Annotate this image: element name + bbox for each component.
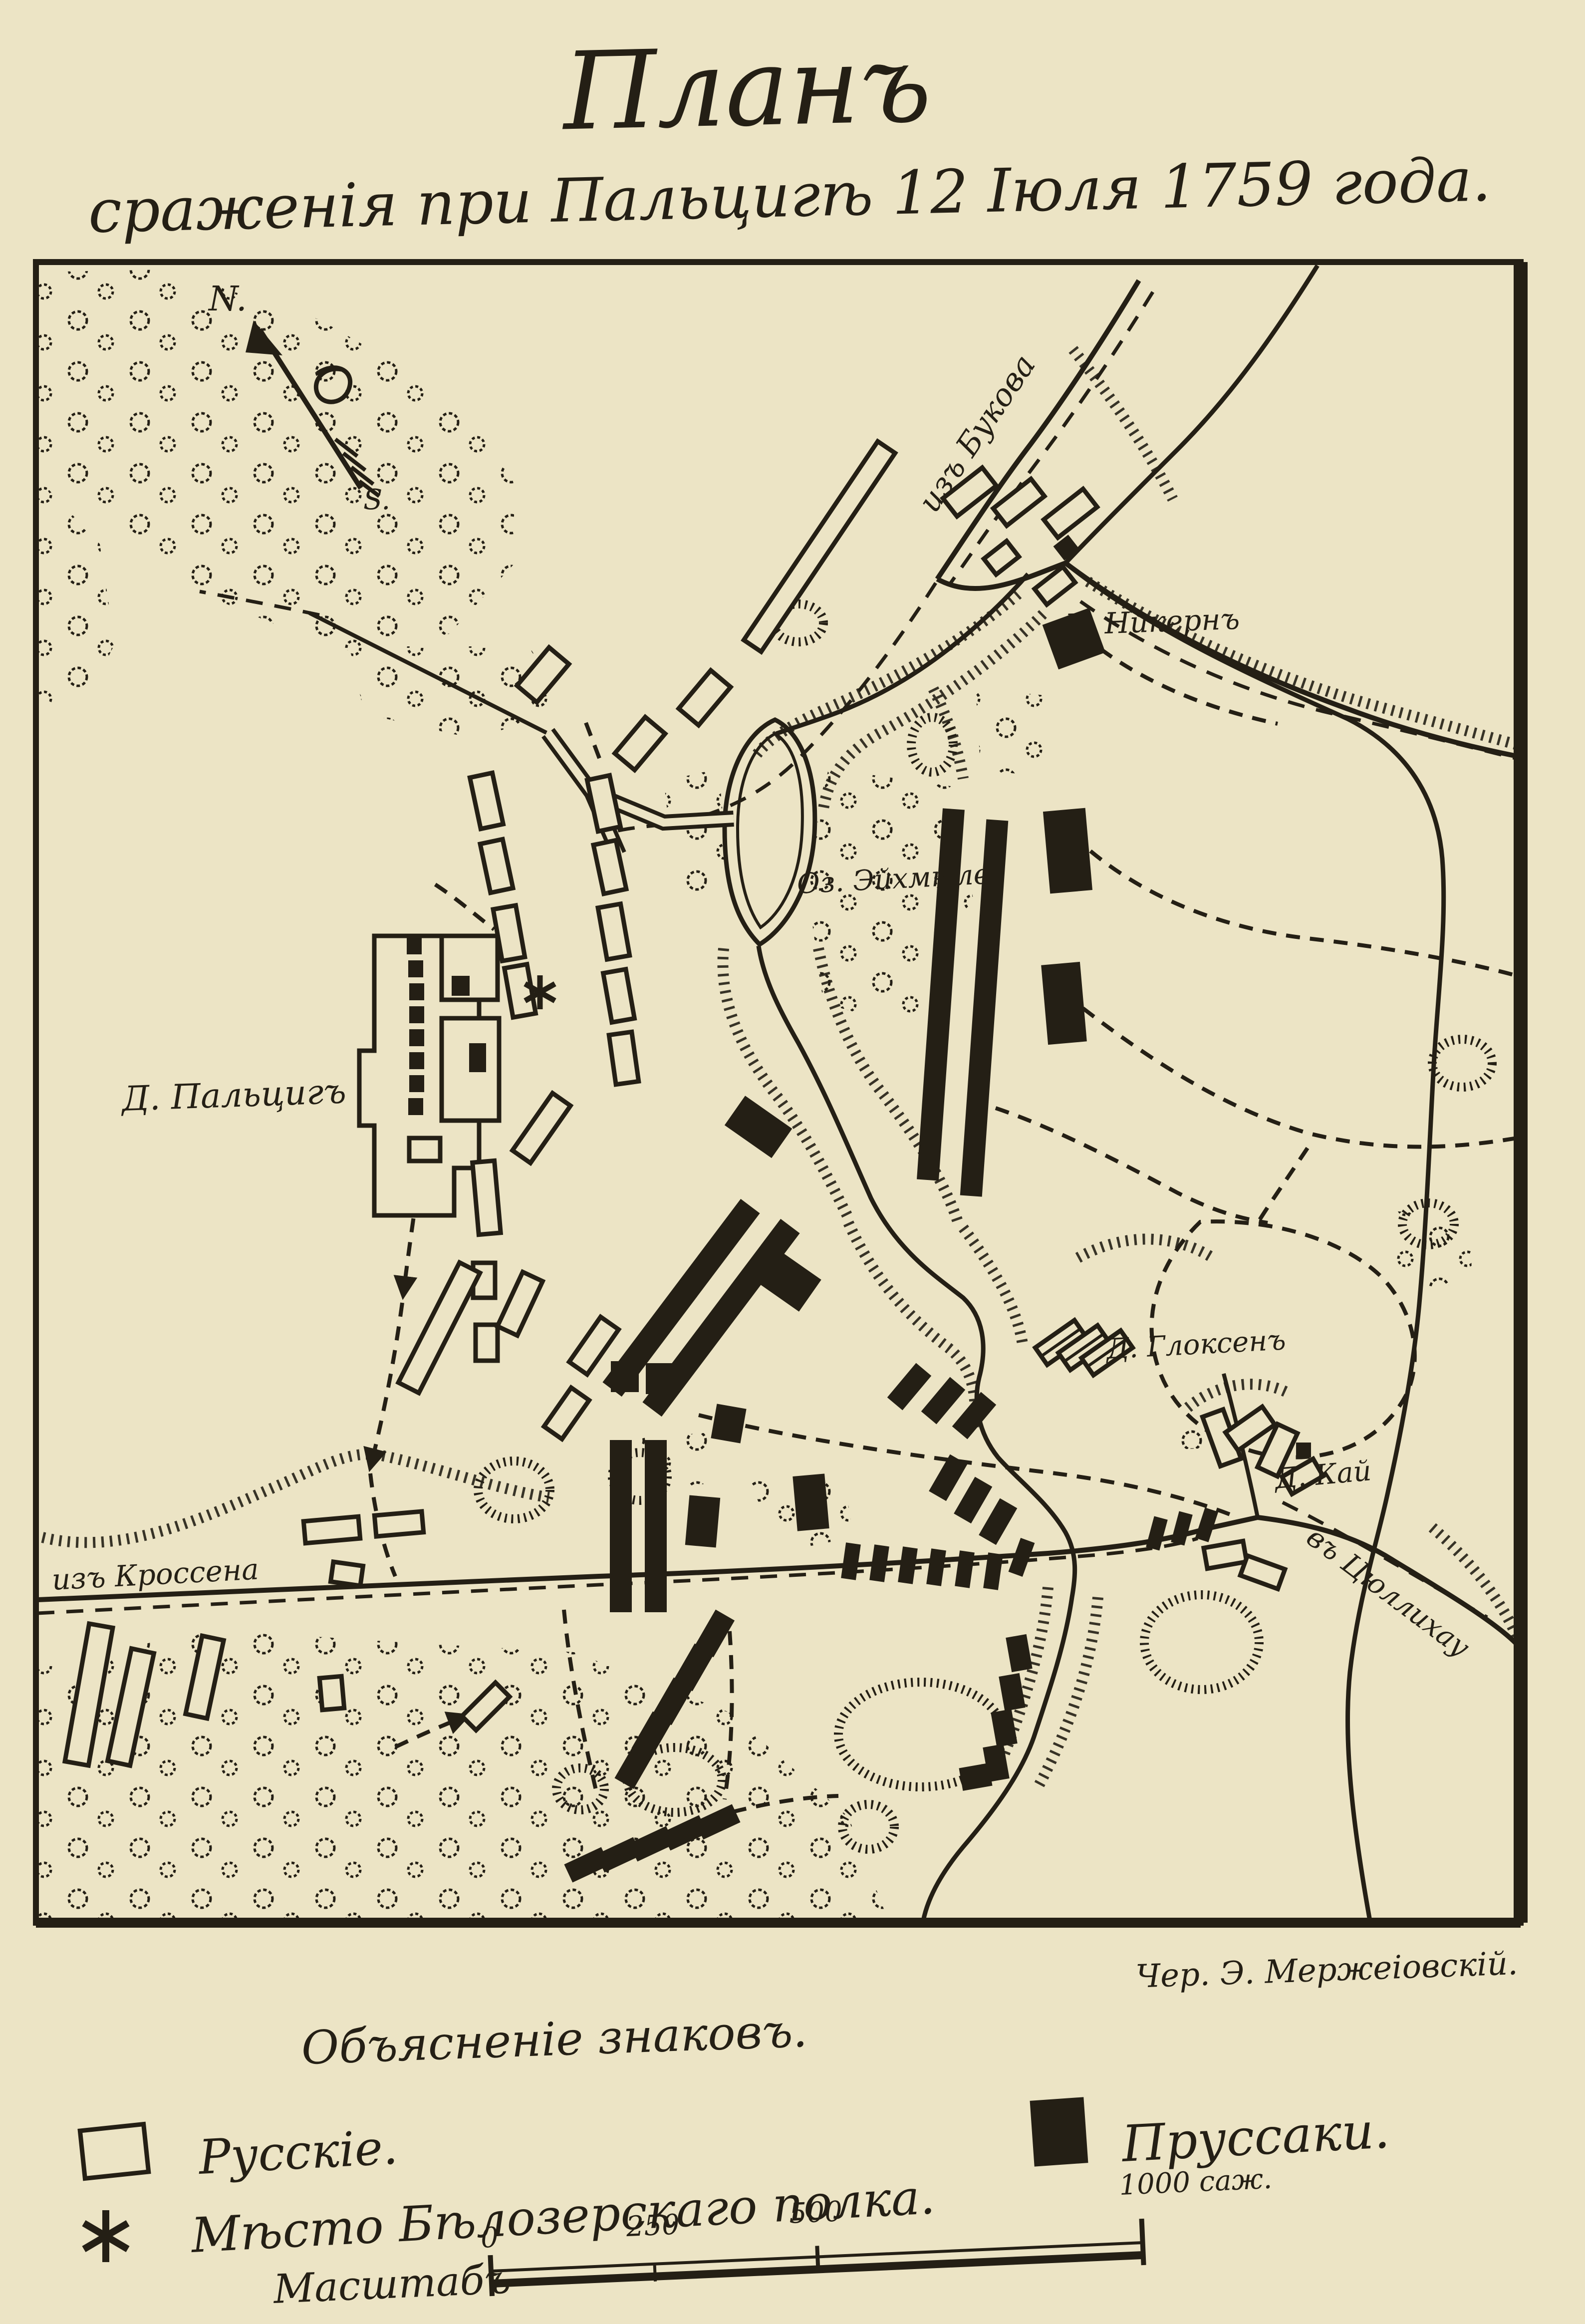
prussian-unit-long	[645, 1440, 667, 1612]
russian-unit	[609, 1032, 638, 1084]
scale-tick-0: 0	[480, 2221, 499, 2254]
legend-russian-label: Русскіе.	[196, 2120, 399, 2185]
label-palzig: Д. Пальцигъ	[120, 1072, 347, 1119]
stream-main-lower	[759, 946, 1075, 1921]
prussian-unit	[646, 1363, 674, 1394]
forest-nickern-south	[976, 689, 1058, 776]
prussian-unit	[991, 1709, 1018, 1747]
russian-unit	[513, 1093, 570, 1163]
scale-tick-500: 500	[789, 2195, 843, 2230]
label-gloksen: Д. Глоксенъ	[1104, 1324, 1287, 1366]
prussian-unit	[711, 1404, 746, 1443]
title-line2: сраженія при Пальцигѣ 12 Іюля 1759 года.	[87, 145, 1492, 247]
russian-unit	[331, 1562, 363, 1586]
prussian-unit	[1171, 1511, 1193, 1545]
russian-unit-long	[398, 1262, 480, 1393]
prussian-unit	[954, 1477, 992, 1524]
russian-unit	[544, 1388, 589, 1439]
prussian-unit	[869, 1544, 889, 1582]
russian-unit	[679, 670, 731, 725]
forest-east-grove	[1387, 1210, 1472, 1290]
prussian-unit	[1043, 808, 1092, 894]
map-title: Планъ сраженія при Пальцигѣ 12 Іюля 1759…	[84, 8, 1492, 247]
prussian-unit	[959, 1763, 992, 1791]
russian-unit	[587, 775, 620, 831]
russian-unit	[303, 1516, 360, 1543]
russian-unit	[374, 1511, 423, 1536]
legend-prussian-symbol	[1030, 2097, 1088, 2166]
map-sheet: Планъ сраженія при Пальцигѣ 12 Іюля 1759…	[0, 0, 1585, 2324]
russian-unit	[603, 969, 635, 1022]
russian-unit	[473, 1161, 501, 1234]
forest-west-of-lake	[664, 769, 729, 908]
battle-map-svg: Планъ сраженія при Пальцигѣ 12 Іюля 1759…	[0, 0, 1585, 2324]
prussian-unit	[1006, 1634, 1033, 1672]
prussian-unit	[926, 1548, 946, 1586]
prussian-unit	[792, 1473, 829, 1531]
legend: Объясненіе знаковъ. Русскіе. Пруссаки. М…	[80, 2004, 1391, 2264]
russian-unit	[498, 1272, 543, 1335]
prussian-unit	[921, 1377, 965, 1425]
compass-south-label: S.	[363, 484, 390, 516]
hatched-hollows	[478, 604, 1492, 1849]
prussian-unit	[841, 1542, 861, 1580]
russian-unit	[476, 1325, 498, 1361]
lake-eichmuehle-inner	[738, 734, 802, 927]
prussian-unit	[979, 1498, 1017, 1545]
prussian-unit	[685, 1495, 720, 1547]
village-kay	[1203, 1407, 1323, 1589]
prussian-unit	[1041, 962, 1087, 1045]
legend-prussian-label: Пруссаки.	[1119, 2101, 1391, 2173]
forest-northwest	[39, 270, 514, 651]
credit-line: Чер. Э. Мержеіовскій.	[1135, 1945, 1518, 1996]
compass-north-label: N.	[208, 280, 247, 319]
russian-unit	[470, 773, 503, 829]
scale-tick-1000: 1000 саж.	[1118, 2163, 1273, 2202]
russian-unit-long	[744, 441, 895, 651]
prussian-unit	[955, 1550, 975, 1588]
legend-russian-symbol	[80, 2124, 148, 2179]
prussian-unit	[611, 1361, 639, 1392]
prussian-unit	[898, 1546, 918, 1584]
legend-heading: Объясненіе знаковъ.	[300, 2004, 808, 2075]
russian-unit	[598, 904, 630, 959]
title-line1: Планъ	[560, 21, 933, 155]
label-nickern: Д. Никернъ	[1060, 602, 1240, 642]
prussian-unit	[929, 1454, 967, 1501]
forest-south	[39, 1630, 888, 1921]
prussian-unit-long	[610, 1440, 632, 1612]
scale-label: Масштабъ	[271, 2256, 512, 2313]
russian-unit	[615, 717, 665, 770]
stream-east	[1065, 266, 1444, 1921]
scale-tick-250: 250	[625, 2208, 680, 2243]
russian-unit	[505, 964, 536, 1017]
prussian-unit	[887, 1363, 931, 1411]
prussian-unit	[999, 1673, 1026, 1711]
russian-unit	[319, 1676, 344, 1710]
russian-unit	[480, 839, 513, 892]
legend-star-symbol	[84, 2210, 128, 2262]
